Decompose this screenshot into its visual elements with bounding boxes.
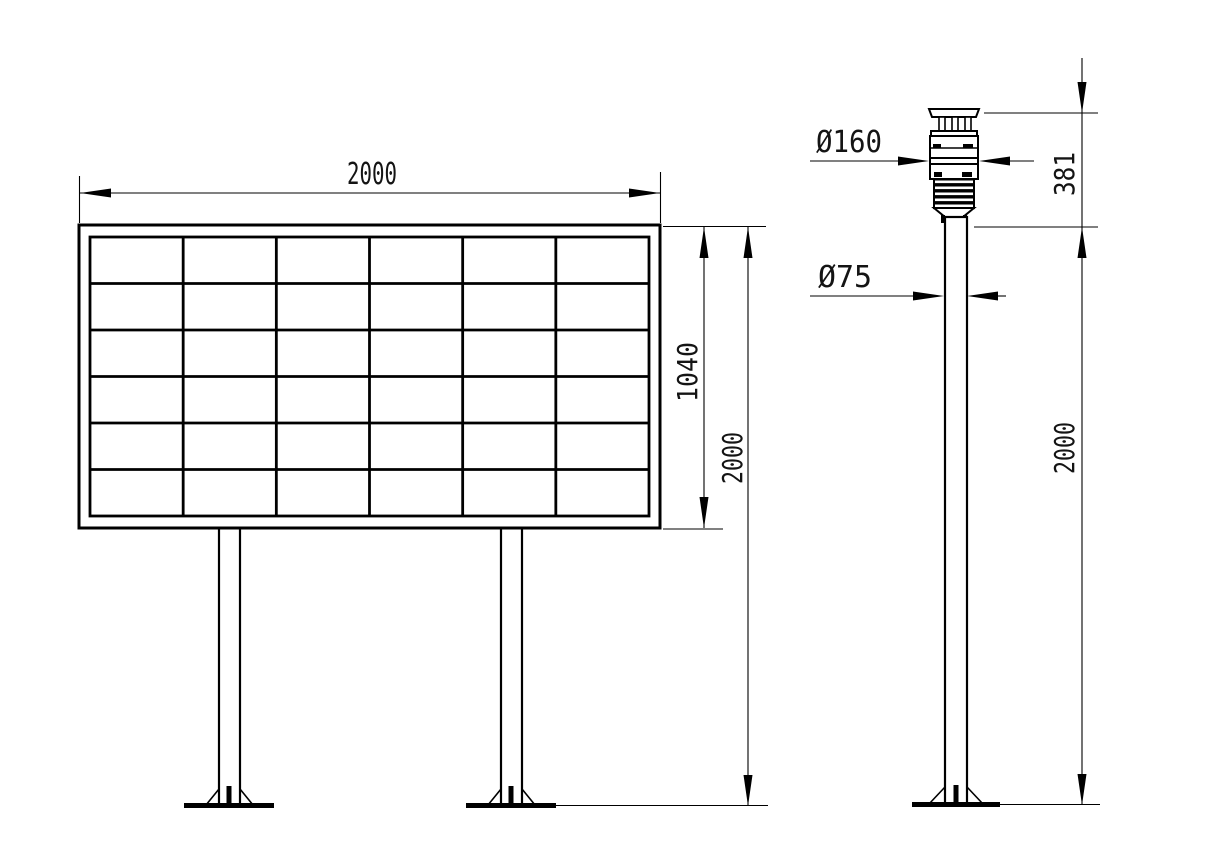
anchor-bolt	[954, 785, 959, 802]
arrow-left-icon	[80, 189, 111, 198]
arrow-down-icon	[1078, 82, 1087, 113]
side-view: Ø160 Ø75 381 2000	[810, 58, 1100, 807]
drawing-canvas: 2000	[0, 0, 1228, 864]
arrow-left-icon	[967, 292, 998, 301]
screen-height-label: 1040	[671, 342, 704, 402]
arrow-up-icon	[744, 227, 753, 258]
dim-sensor-diameter: Ø160	[810, 125, 1034, 166]
left-base-plate	[184, 786, 274, 808]
anchor-bolt	[227, 786, 232, 804]
arrow-right-icon	[913, 292, 944, 301]
sensor-cap	[929, 109, 979, 117]
arrow-right-icon	[629, 189, 660, 198]
weather-sensor	[929, 109, 979, 223]
panel-legs	[219, 528, 522, 803]
panel-grid	[90, 237, 649, 516]
right-base-plate	[466, 786, 556, 808]
sensor-diameter-label: Ø160	[816, 125, 882, 160]
arrow-up-icon	[700, 227, 709, 258]
sensor-louvers	[934, 180, 974, 209]
arrow-down-icon	[1078, 774, 1087, 805]
front-view: 2000	[79, 157, 768, 808]
sensor-height-label: 381	[1048, 152, 1081, 196]
mount-height-label: 2000	[716, 432, 749, 484]
arrow-right-icon	[898, 157, 929, 166]
sensor-post	[939, 117, 945, 131]
anchor-bolt	[509, 786, 514, 804]
pole-base-plate	[912, 785, 1000, 807]
technical-drawing-page: 2000	[0, 0, 1228, 864]
pole-height-label: 2000	[1048, 422, 1081, 474]
arrow-down-icon	[744, 775, 753, 806]
arrow-left-icon	[979, 157, 1010, 166]
dim-pole-diameter: Ø75	[810, 260, 1006, 301]
arrow-down-icon	[700, 497, 709, 528]
dim-mount-height: 2000	[716, 227, 753, 806]
pole	[945, 217, 967, 804]
pole-diameter-label: Ø75	[818, 260, 872, 295]
dim-sensor-height: 381	[974, 58, 1098, 227]
panel-width-label: 2000	[347, 157, 397, 192]
arrow-up-icon	[1078, 227, 1087, 258]
dim-panel-width: 2000	[80, 157, 661, 223]
dim-screen-height: 1040	[663, 227, 766, 530]
dim-pole-height: 2000	[1048, 227, 1087, 805]
sensor-taper	[934, 208, 974, 217]
sensor-post	[965, 117, 971, 131]
sensor-post	[952, 117, 958, 131]
